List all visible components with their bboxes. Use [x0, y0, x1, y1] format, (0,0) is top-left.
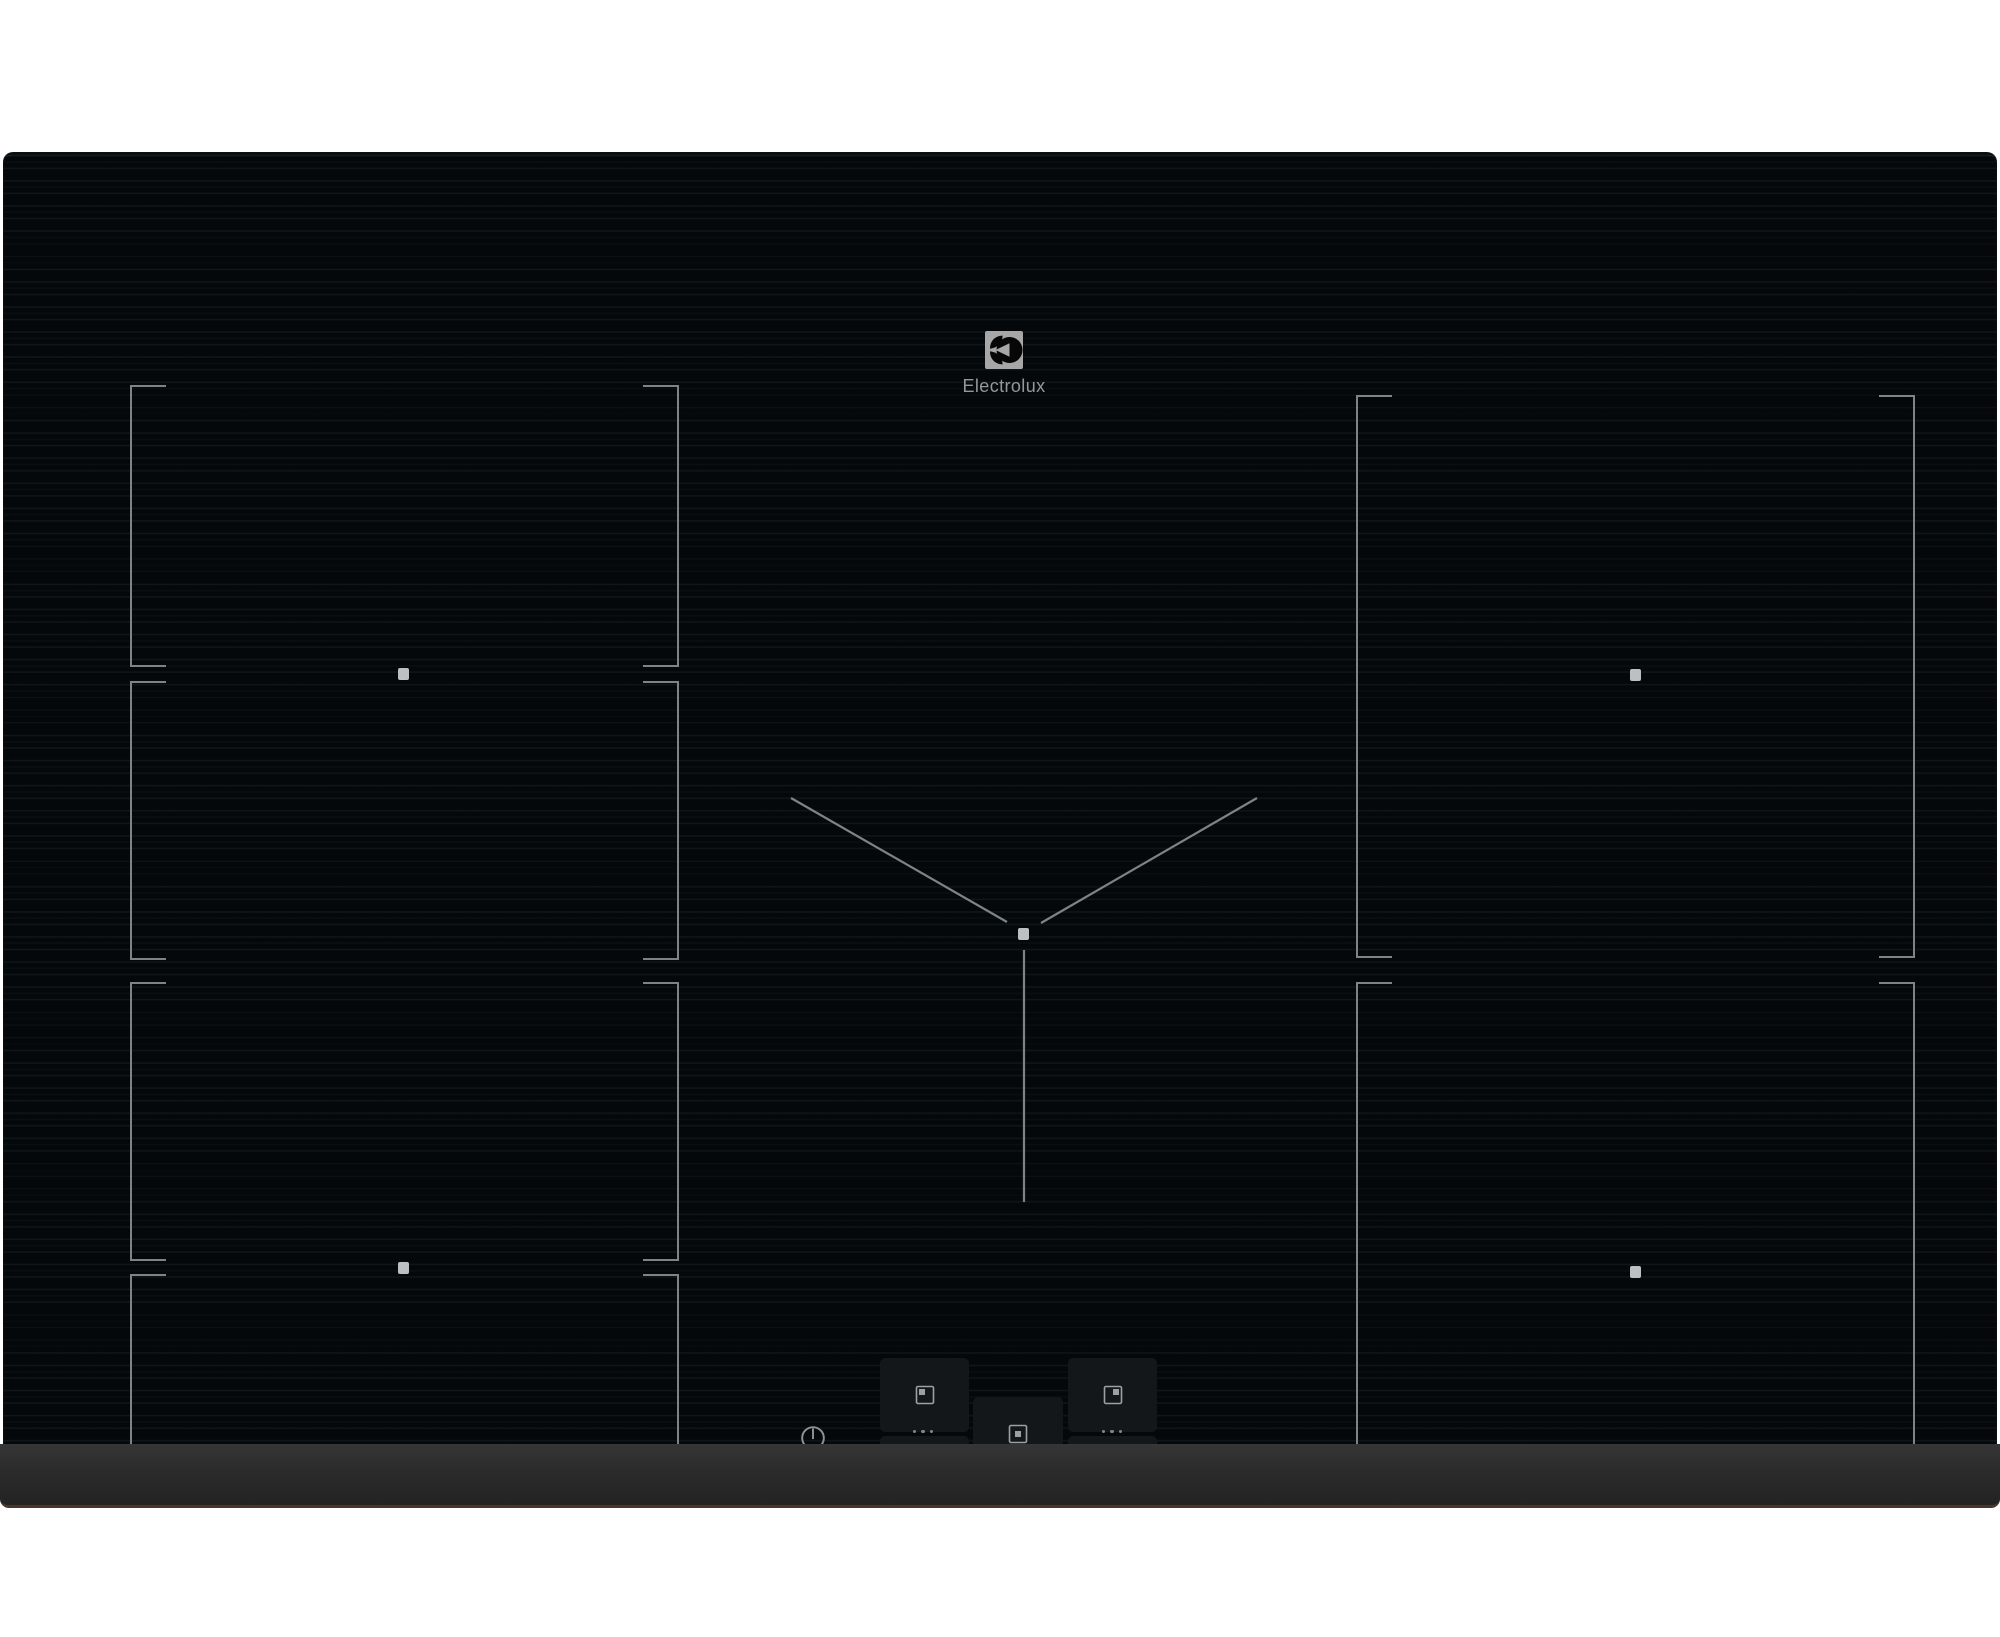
more-dots-right[interactable] [1102, 1430, 1122, 1433]
square-marker-top-left-icon [915, 1385, 935, 1405]
zone-bracket-front-left-3 [130, 982, 679, 1261]
zone-pad-center[interactable] [973, 1397, 1063, 1444]
power-button[interactable] [800, 1425, 826, 1444]
zone-bracket-rear-left-2 [130, 681, 679, 960]
electrolux-symbol-icon [985, 331, 1023, 369]
zone-pad-rear-right[interactable] [1068, 1358, 1157, 1432]
zone-bracket-rear-left-1 [130, 385, 679, 667]
zone-dot-front-left [398, 1262, 409, 1274]
zone-bracket-front-left-4 [130, 1274, 679, 1444]
zone-pad-front-right[interactable] [1068, 1436, 1157, 1444]
brand-wordmark: Electrolux [934, 377, 1074, 395]
square-marker-top-right-icon [1103, 1385, 1123, 1405]
zone-pad-rear-left[interactable] [880, 1358, 969, 1432]
front-bezel [0, 1444, 2000, 1508]
induction-hob-glass: Electrolux [3, 152, 1997, 1444]
square-marker-center-icon [1008, 1424, 1028, 1444]
zone-dot-front-right [1630, 1266, 1641, 1278]
product-photo-electrolux-hob: { "device": { "brand_wordmark": "Electro… [0, 0, 2000, 1637]
more-dots-left[interactable] [913, 1430, 933, 1433]
zone-dot-rear-left [398, 668, 409, 680]
zone-pad-front-left[interactable] [880, 1436, 969, 1444]
zone-bracket-front-right [1356, 982, 1915, 1444]
center-zone-v-marking [773, 780, 1273, 1210]
zone-dot-rear-right [1630, 669, 1641, 681]
